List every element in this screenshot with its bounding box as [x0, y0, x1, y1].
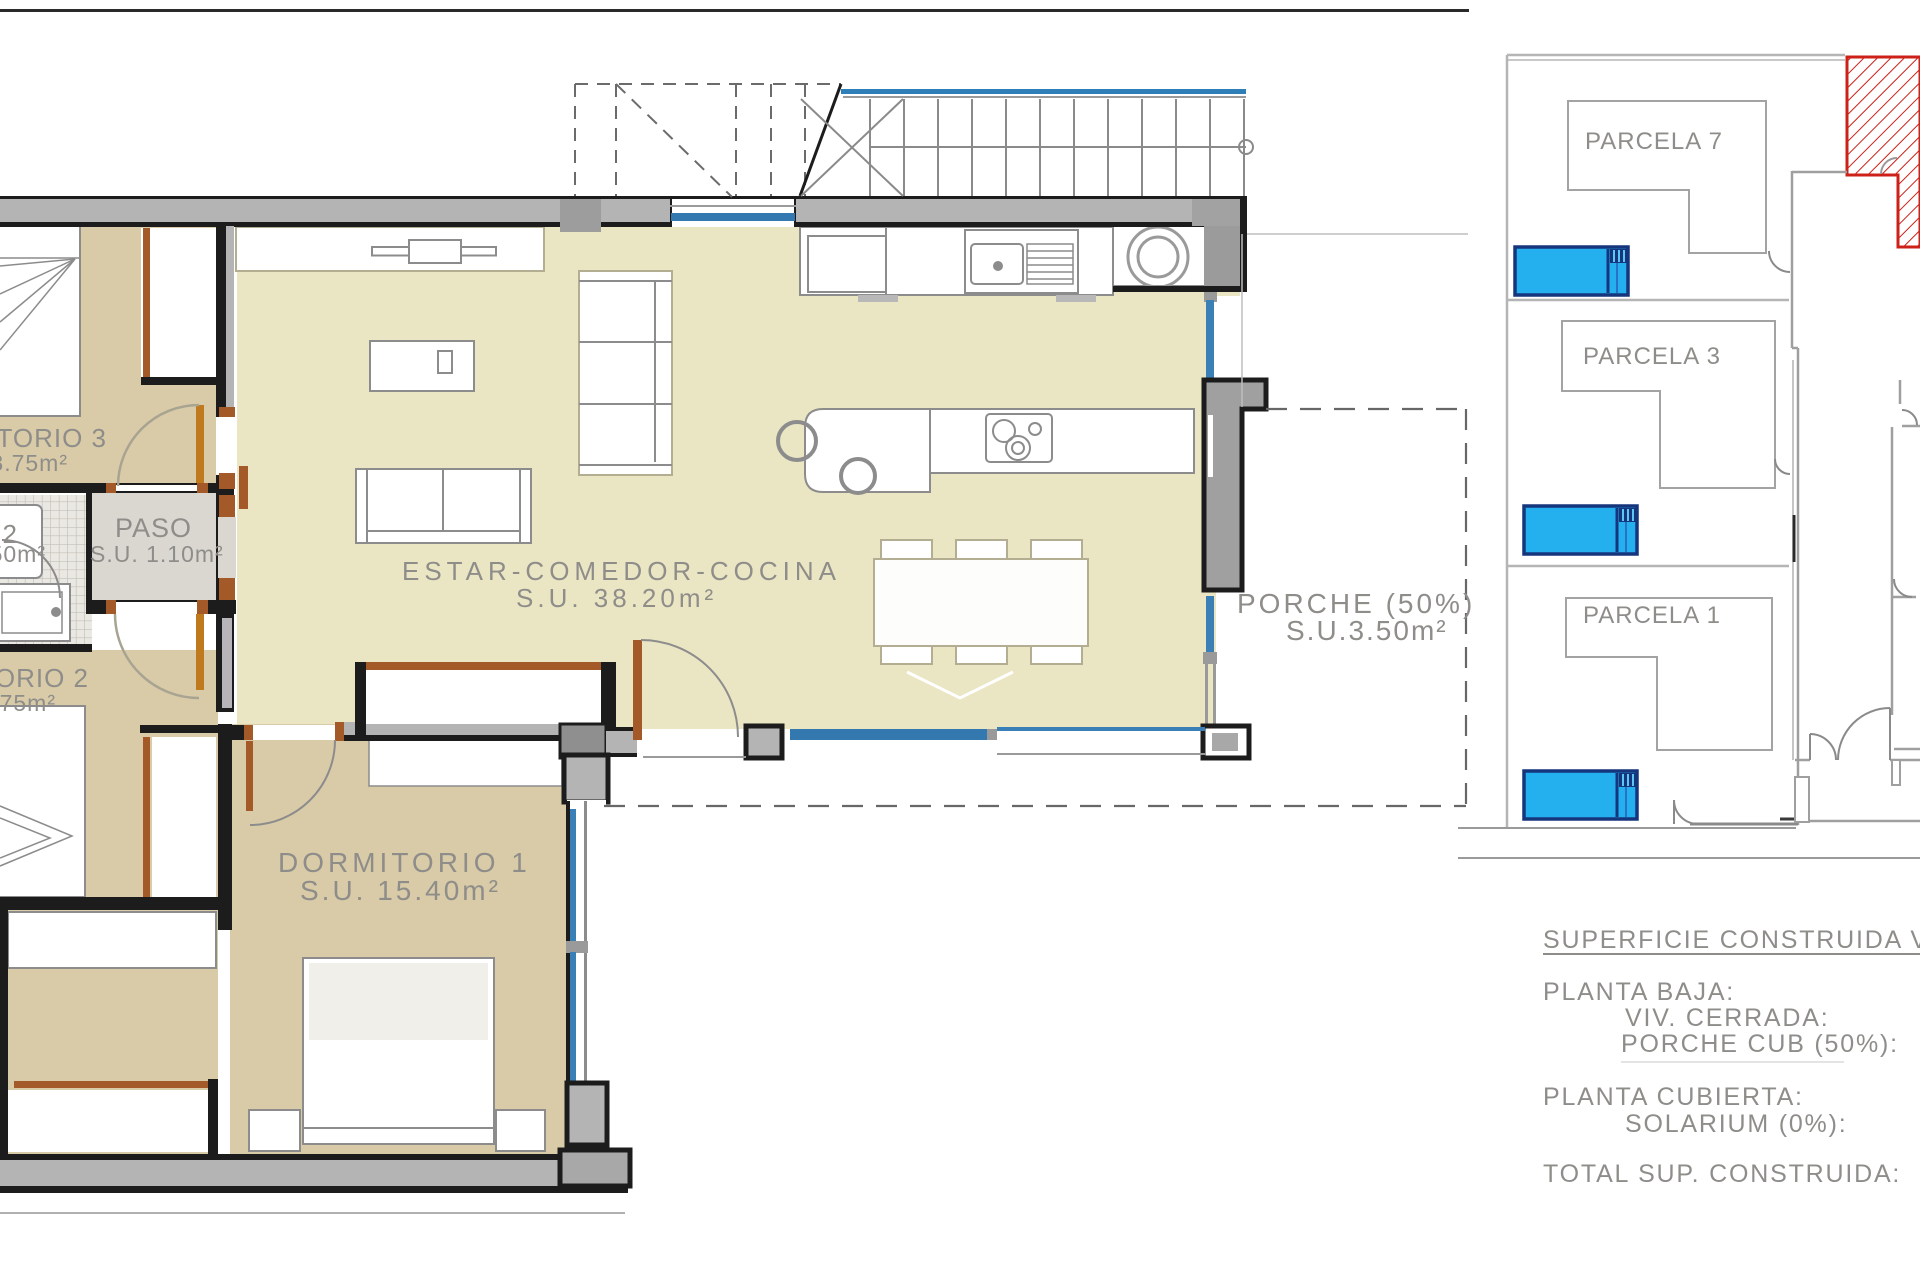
svg-text:S.U. 10.75m²: S.U. 10.75m² — [0, 690, 56, 716]
svg-text:S.U. 1.10m²: S.U. 1.10m² — [90, 541, 224, 567]
svg-text:TOTAL SUP. CONSTRUIDA:: TOTAL SUP. CONSTRUIDA: — [1543, 1160, 1901, 1188]
svg-text:ESTAR-COMEDOR-COCINA: ESTAR-COMEDOR-COCINA — [402, 556, 841, 586]
svg-text:SUPERFICIE CONSTRUIDA VIVIENDA: SUPERFICIE CONSTRUIDA VIVIENDA — [1543, 926, 1920, 954]
svg-text:S.U.3.50m²: S.U.3.50m² — [1286, 615, 1448, 646]
svg-text:SOLARIUM (0%):: SOLARIUM (0%): — [1625, 1110, 1847, 1138]
svg-text:S.U. 8.75m²: S.U. 8.75m² — [0, 450, 68, 476]
svg-text:PASO: PASO — [115, 513, 192, 543]
svg-text:S.U. 15.40m²: S.U. 15.40m² — [300, 875, 501, 906]
svg-text:DORMITORIO 3: DORMITORIO 3 — [0, 423, 107, 453]
svg-text:PARCELA 1: PARCELA 1 — [1583, 602, 1721, 629]
svg-text:DORMITORIO 1: DORMITORIO 1 — [278, 847, 531, 878]
svg-text:PORCHE CUB (50%):: PORCHE CUB (50%): — [1621, 1030, 1899, 1058]
svg-text:S.U. 38.20m²: S.U. 38.20m² — [516, 583, 717, 613]
svg-text:S.U. 4.50m²: S.U. 4.50m² — [0, 541, 46, 567]
svg-text:PLANTA CUBIERTA:: PLANTA CUBIERTA: — [1543, 1083, 1804, 1111]
svg-text:PARCELA 7: PARCELA 7 — [1585, 128, 1723, 155]
svg-text:VIV. CERRADA:: VIV. CERRADA: — [1625, 1004, 1829, 1032]
svg-text:PLANTA BAJA:: PLANTA BAJA: — [1543, 978, 1735, 1006]
svg-text:DORMITORIO 2: DORMITORIO 2 — [0, 663, 89, 693]
svg-text:PARCELA 3: PARCELA 3 — [1583, 343, 1721, 370]
